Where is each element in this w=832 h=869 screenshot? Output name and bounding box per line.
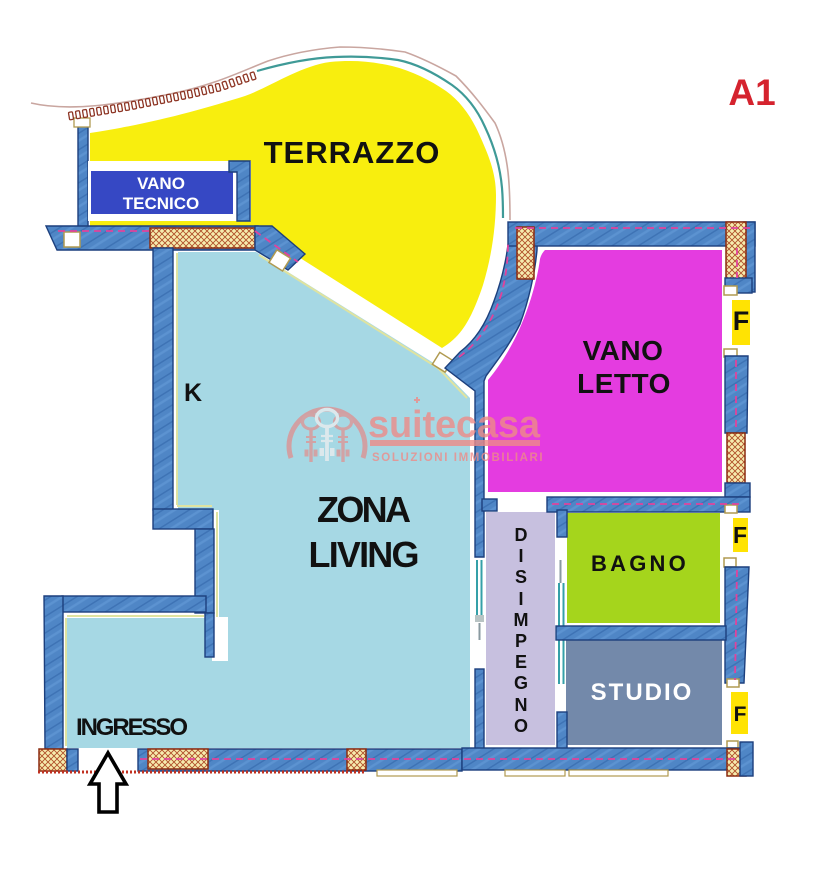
svg-text:suitecasa: suitecasa [368,404,541,446]
svg-text:BAGNO: BAGNO [591,551,689,576]
svg-text:D: D [515,525,528,545]
svg-text:VANO: VANO [137,174,185,193]
svg-text:STUDIO: STUDIO [591,679,694,706]
svg-text:A1: A1 [728,72,775,113]
svg-text:TECNICO: TECNICO [123,194,200,213]
svg-text:VANO: VANO [583,335,664,366]
svg-text:I: I [518,589,523,609]
svg-text:G: G [514,673,528,693]
svg-text:P: P [515,631,527,651]
svg-text:F: F [733,522,747,548]
svg-text:M: M [514,610,529,630]
svg-text:TERRAZZO: TERRAZZO [264,135,441,170]
svg-text:N: N [515,695,528,715]
svg-text:F: F [733,306,750,336]
svg-text:LIVING: LIVING [309,534,420,575]
svg-text:LETTO: LETTO [577,368,671,399]
svg-text:I: I [518,546,523,566]
svg-text:O: O [514,716,528,736]
svg-text:E: E [515,652,527,672]
svg-text:S: S [515,567,527,587]
svg-text:ZONA: ZONA [317,489,411,530]
svg-text:K: K [184,379,202,407]
svg-text:F: F [734,703,747,726]
svg-text:INGRESSO: INGRESSO [76,714,188,741]
svg-text:SOLUZIONI IMMOBILIARI: SOLUZIONI IMMOBILIARI [372,452,544,464]
